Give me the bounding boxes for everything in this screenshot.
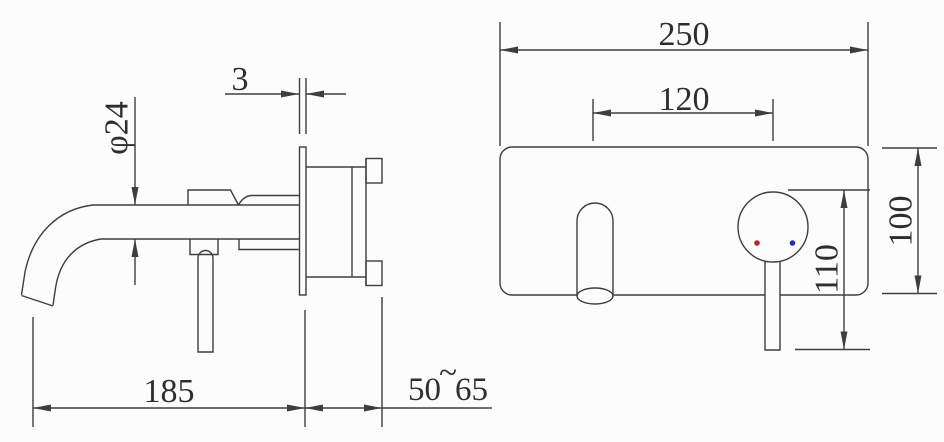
dim-plate-thickness: 3: [225, 61, 346, 134]
arrowhead-left: [500, 47, 518, 54]
dim-hole-spacing: 120: [593, 81, 773, 141]
dim-wall-depth: 50 ~ 65: [305, 297, 492, 427]
spout-front: [577, 203, 613, 304]
dim-handle-drop-label: 110: [809, 244, 846, 294]
dim-plate-width-label: 250: [659, 16, 710, 53]
wall-plate-side: [300, 147, 307, 295]
arrowhead-left: [33, 405, 51, 412]
body-top-block: [188, 190, 239, 205]
body-top-neck: [239, 196, 300, 206]
spout-capsule: [577, 203, 613, 296]
arrowhead-left: [305, 405, 323, 412]
arrowhead-left: [593, 110, 611, 117]
dim-plate-height-label: 100: [883, 196, 920, 247]
mounting-bracket-bottom: [366, 261, 382, 286]
arrowhead-right: [850, 47, 868, 54]
stem-outline: [198, 258, 213, 352]
arrowhead-down: [132, 187, 139, 205]
inwall-valve-box: [306, 159, 382, 286]
dim-hole-spacing-label: 120: [659, 81, 710, 118]
dim-plate-thickness-label: 3: [232, 61, 249, 98]
spout-tip-cut: [22, 296, 54, 307]
dim-spout-diameter-label: φ24: [99, 101, 136, 155]
dim-spout-reach: 185: [33, 310, 305, 427]
arrowhead-up: [915, 148, 922, 166]
dim-wall-depth-max-label: 65: [455, 372, 488, 408]
arrowhead-right: [287, 405, 305, 412]
arrowhead-down: [915, 276, 922, 294]
dim-spout-diameter: φ24: [99, 97, 139, 285]
handle-stem-front: [765, 261, 780, 350]
cold-indicator-dot: [790, 240, 796, 246]
hot-indicator-dot: [754, 240, 760, 246]
body-bottom-neck: [239, 239, 299, 250]
faucet-body-side: [188, 190, 299, 255]
arrowhead-up: [132, 239, 139, 257]
arrowhead-right: [281, 91, 299, 98]
arrowhead-right: [755, 110, 773, 117]
arrowhead-right: [364, 405, 382, 412]
arrowhead-left: [306, 91, 324, 98]
front-view: 250 120 110 100: [500, 16, 937, 350]
dim-spout-reach-label: 185: [144, 373, 195, 410]
mounting-bracket-top: [366, 159, 382, 184]
side-view: φ24 3 185 50 ~ 65: [22, 61, 493, 427]
dim-wall-depth-min-label: 50: [408, 372, 441, 408]
arrowhead-down: [841, 332, 848, 350]
spout-outlet-ellipse: [577, 288, 613, 304]
dim-plate-height: 100: [882, 148, 937, 294]
body-bottom-block: [190, 239, 218, 255]
spout-inner-curve: [53, 239, 101, 306]
spout-side: [22, 205, 300, 306]
handle-stem-side: [198, 251, 213, 352]
technical-drawing-canvas: φ24 3 185 50 ~ 65: [0, 0, 944, 442]
drawing-svg: φ24 3 185 50 ~ 65: [0, 0, 944, 442]
